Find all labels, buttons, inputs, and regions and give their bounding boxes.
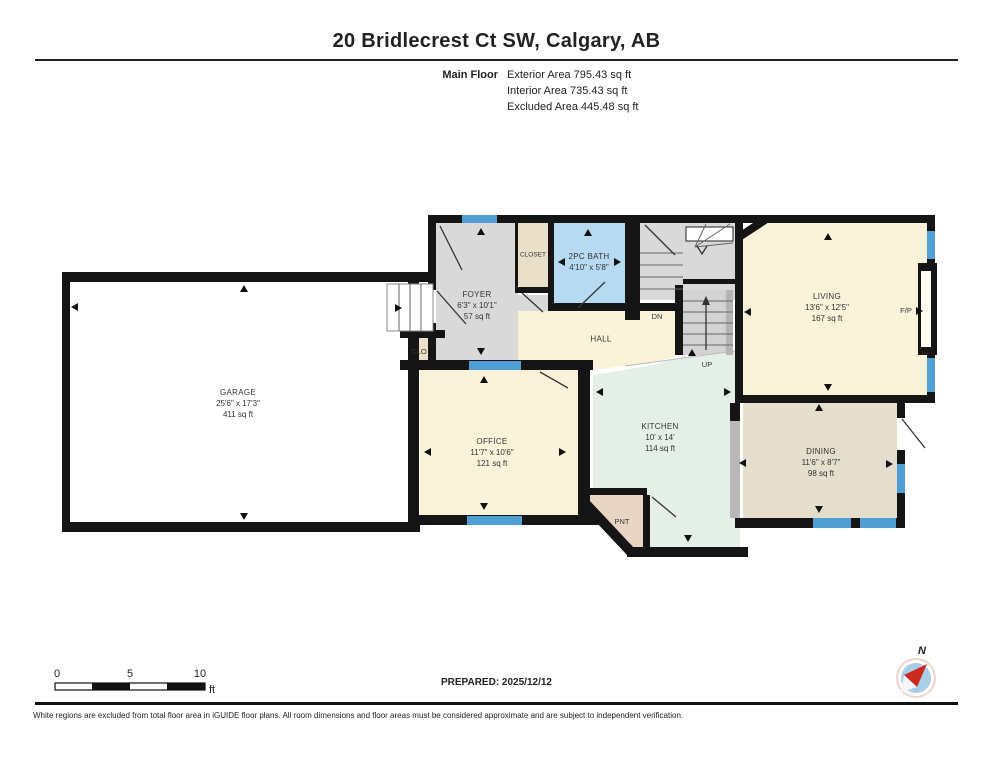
label-kitchen: KITCHEN 10' x 14' 114 sq ft <box>641 422 678 454</box>
entry-steps <box>387 284 433 331</box>
dimension-arrow <box>744 308 751 316</box>
dimension-arrow <box>477 348 485 355</box>
label-garage: GARAGE 25'6" x 17'3" 411 sq ft <box>216 388 260 420</box>
dimension-arrow <box>688 349 696 356</box>
dimension-arrow <box>684 535 692 542</box>
dimension-arrow <box>477 228 485 235</box>
window-dining-bottom-1 <box>813 518 851 528</box>
label-dining: DINING 11'6" x 8'7" 98 sq ft <box>802 447 841 479</box>
label-hall: HALL <box>590 335 611 346</box>
floor-plan-page: { "header": { "title": "20 Bridlecrest C… <box>0 0 993 768</box>
label-fireplace: F/P <box>900 306 912 316</box>
dimension-arrow <box>395 304 402 312</box>
dimension-arrow <box>584 229 592 236</box>
dimension-arrow <box>240 513 248 520</box>
window-office-top <box>469 361 521 370</box>
dimension-arrow <box>886 460 893 468</box>
dimension-arrow <box>824 233 832 240</box>
label-stairs-up: UP <box>702 360 712 370</box>
disclaimer-text: White regions are excluded from total fl… <box>33 711 963 720</box>
dining-door-gap <box>897 418 905 450</box>
label-foyer: FOYER 6'3" x 10'1" 57 sq ft <box>457 290 496 322</box>
dimension-arrow <box>815 404 823 411</box>
dimension-arrow <box>480 503 488 510</box>
dimension-arrow <box>559 448 566 456</box>
dimension-arrow <box>71 303 78 311</box>
dimension-arrow <box>724 388 731 396</box>
window-living-top <box>927 231 935 259</box>
footer-divider <box>35 702 958 705</box>
window-dining-bottom-2 <box>860 518 896 528</box>
window-dining-right <box>897 464 905 493</box>
window-living-bottom <box>927 358 935 392</box>
compass-north-label: N <box>918 645 926 657</box>
label-living: LIVING 13'6" x 12'5" 167 sq ft <box>805 292 849 324</box>
dimension-arrow <box>424 448 431 456</box>
dimension-arrow <box>739 459 746 467</box>
dimension-arrow <box>596 388 603 396</box>
dining-patio-door <box>902 419 925 448</box>
label-bath: 2PC BATH 4'10" x 5'8" <box>569 252 610 274</box>
window-office-bottom <box>467 516 522 525</box>
label-closet: CLOSET <box>520 252 546 261</box>
dimension-arrow <box>240 285 248 292</box>
dimension-arrow <box>815 506 823 513</box>
window-foyer <box>462 215 497 223</box>
label-clo: CLO <box>411 347 426 357</box>
dimension-arrow <box>558 258 565 266</box>
prepared-date: PREPARED: 2025/12/12 <box>0 677 993 688</box>
dimension-arrow <box>480 376 488 383</box>
dimension-arrow <box>824 384 832 391</box>
label-pantry: PNT <box>615 517 630 527</box>
label-office: OFFICE 11'7" x 10'6" 121 sq ft <box>470 437 513 469</box>
dimension-arrow <box>916 307 923 315</box>
floor-plan-canvas <box>0 0 993 768</box>
label-stairs-down: DN <box>652 312 663 322</box>
dimension-arrow <box>614 258 621 266</box>
